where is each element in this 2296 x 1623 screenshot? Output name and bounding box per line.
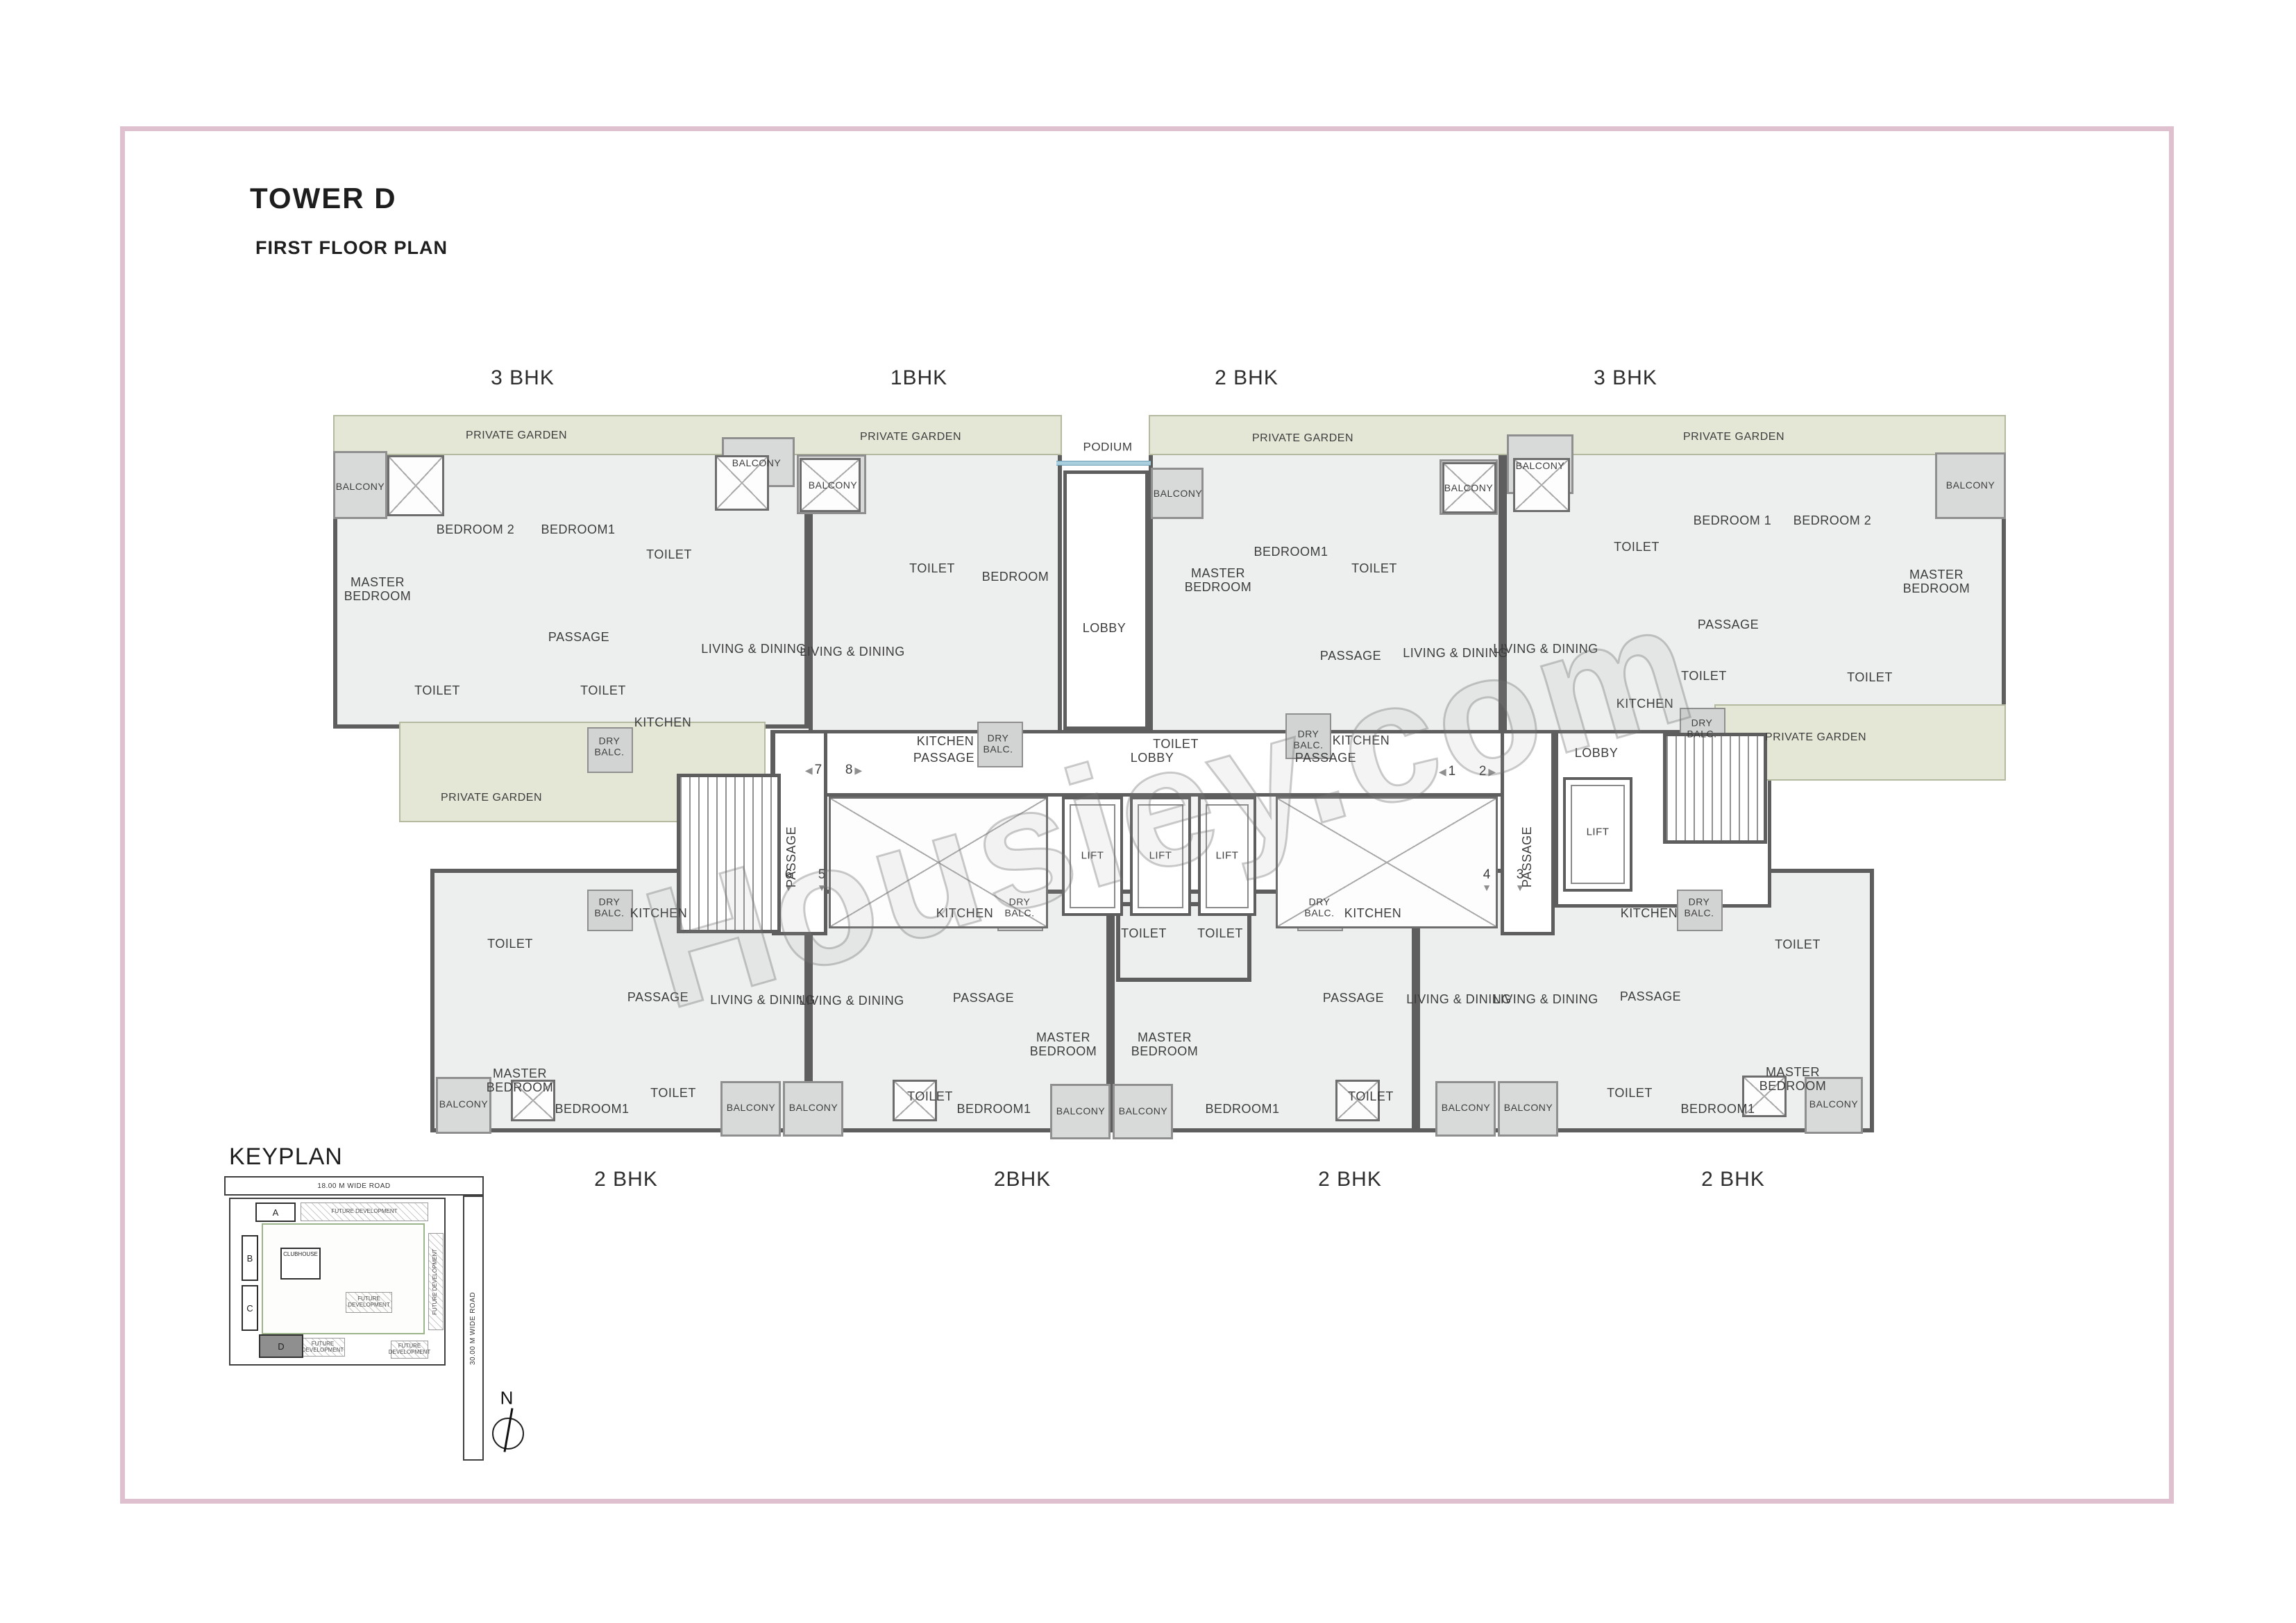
staircase — [677, 774, 781, 933]
room-label: PRIVATE GARDEN — [860, 431, 961, 443]
room-label: KITCHEN — [1333, 733, 1390, 747]
unit-type-label: 1BHK — [890, 366, 947, 390]
room-label: LIFT — [1149, 851, 1172, 863]
unit-type-label: 3 BHK — [491, 366, 555, 390]
staircase — [1663, 733, 1767, 844]
room-label: DRY BALC. — [1005, 897, 1035, 918]
arrow-triangle-icon: ▼ — [817, 883, 827, 892]
room-label: LIVING & DINING — [1403, 646, 1508, 660]
podium-glazing — [1056, 461, 1151, 466]
page-subtitle: FIRST FLOOR PLAN — [255, 237, 448, 259]
room-label: BEDROOM1 — [541, 522, 615, 536]
room-label: TOILET — [1681, 669, 1727, 683]
room-label: PRIVATE GARDEN — [1683, 431, 1784, 443]
keyplan-road: 18.00 M WIDE ROAD — [224, 1176, 484, 1196]
room-label: KITCHEN — [634, 715, 692, 729]
room-label: TOILET — [1847, 670, 1893, 684]
room-label: BALCONY — [809, 480, 857, 491]
keyplan-building-c: C — [242, 1285, 258, 1331]
entry-arrow-1: ◀1 — [1439, 764, 1455, 779]
room-label: MASTER BEDROOM — [1030, 1030, 1097, 1058]
room-label: TOILET — [1197, 926, 1243, 940]
entry-arrow-8: 8▶ — [845, 763, 862, 778]
room-label: BEDROOM 2 — [437, 522, 515, 536]
room-label: TOILET — [1121, 926, 1167, 940]
room-label: DRY BALC. — [595, 736, 625, 757]
room-label: PASSAGE — [548, 630, 609, 644]
room-label: MASTER BEDROOM — [1185, 566, 1252, 594]
north-label: N — [500, 1388, 514, 1409]
room-label: KITCHEN — [917, 734, 974, 748]
room-label: BEDROOM — [982, 570, 1049, 584]
room-label: PRIVATE GARDEN — [1765, 731, 1866, 744]
room-label: LIVING & DINING — [1493, 642, 1598, 656]
room-label: MASTER BEDROOM — [487, 1067, 554, 1094]
keyplan-building-d: D — [259, 1334, 303, 1358]
room-label: LIVING & DINING — [1493, 992, 1598, 1006]
room-label: BEDROOM1 — [555, 1102, 629, 1116]
room-label: PASSAGE — [1520, 826, 1534, 887]
room-label: BALCONY — [1809, 1099, 1858, 1110]
room-label: TOILET — [646, 547, 692, 561]
room-label: BALCONY — [1442, 1103, 1490, 1114]
room-label: MASTER BEDROOM — [1131, 1030, 1199, 1058]
room-label: LIVING & DINING — [799, 994, 904, 1008]
unit-type-label: 2 BHK — [1215, 366, 1278, 390]
room-label: PASSAGE — [627, 990, 689, 1004]
unit-type-label: 2BHK — [994, 1168, 1051, 1191]
arrow-triangle-icon: ◀ — [1439, 767, 1446, 776]
room-label: BALCONY — [727, 1103, 775, 1114]
room-label: BALCONY — [1444, 483, 1493, 494]
room-label: BEDROOM1 — [956, 1102, 1031, 1116]
room-label: PASSAGE — [1620, 989, 1681, 1003]
room-label: TOILET — [1614, 540, 1660, 554]
entry-arrow-2: 2▶ — [1479, 764, 1496, 779]
entry-arrow-5: 5▼ — [817, 867, 827, 892]
room-label: BALCONY — [1056, 1106, 1105, 1117]
keyplan-building-clubhouse: CLUBHOUSE — [280, 1248, 321, 1280]
room-label: DRY BALC. — [984, 733, 1013, 754]
room-label: LOBBY — [1083, 621, 1126, 635]
room-label: TOILET — [909, 561, 955, 575]
room-label: PRIVATE GARDEN — [466, 430, 567, 442]
room-label: PASSAGE — [1295, 751, 1356, 765]
unit-type-label: 2 BHK — [1318, 1168, 1382, 1191]
room-label: MASTER BEDROOM — [344, 575, 412, 603]
keyplan-building-b: B — [242, 1235, 258, 1281]
unit-type-label: 2 BHK — [594, 1168, 658, 1191]
room-label: TOILET — [1348, 1089, 1394, 1103]
room-label: KITCHEN — [630, 906, 688, 920]
room-label: BEDROOM 2 — [1793, 513, 1872, 527]
room-label: TOILET — [414, 683, 460, 697]
room-label: TOILET — [1775, 937, 1821, 951]
room-label: BEDROOM 1 — [1694, 513, 1772, 527]
room-label: KITCHEN — [936, 906, 994, 920]
keyplan-future-development: FUTURE DEVELOPMENT — [428, 1233, 444, 1330]
room-label: BALCONY — [336, 482, 385, 493]
room-label: TOILET — [1607, 1086, 1653, 1100]
keyplan-future-development: FUTURE DEVELOPMENT — [301, 1203, 428, 1221]
room-label: TOILET — [1153, 737, 1199, 751]
room-label: PRIVATE GARDEN — [441, 792, 542, 804]
room-label: LIVING & DINING — [800, 645, 905, 658]
room-label: BEDROOM1 — [1680, 1102, 1755, 1116]
entry-arrow-4: 4▼ — [1482, 867, 1492, 892]
room-label: BALCONY — [1516, 461, 1564, 472]
room-label: DRY BALC. — [1305, 897, 1335, 918]
room-label: BALCONY — [1119, 1106, 1167, 1117]
keyplan-building-a: A — [255, 1203, 296, 1222]
room-label: DRY BALC. — [1687, 717, 1717, 739]
arrow-triangle-icon: ◀ — [805, 765, 813, 775]
room-label: PASSAGE — [913, 751, 974, 765]
room-label: PASSAGE — [784, 826, 798, 887]
room-label: TOILET — [907, 1089, 953, 1103]
room-label: BALCONY — [439, 1099, 488, 1110]
room-label: PASSAGE — [1698, 618, 1759, 631]
room-label: PASSAGE — [1320, 649, 1381, 663]
room-label: KITCHEN — [1617, 697, 1674, 711]
unit-type-label: 2 BHK — [1701, 1168, 1765, 1191]
room-label: LIFT — [1216, 851, 1239, 863]
room-label: BALCONY — [1504, 1103, 1553, 1114]
room-label: PASSAGE — [1323, 991, 1384, 1005]
room-label: BALCONY — [789, 1103, 838, 1114]
room-label: PASSAGE — [953, 991, 1014, 1005]
floor-plan-page: TOWER D FIRST FLOOR PLAN ◀78▶◀12▶6▼5▼4▼3… — [0, 0, 2296, 1623]
keyplan-future-development: FUTURE DEVELOPMENT — [346, 1292, 392, 1313]
entry-arrow-7: ◀7 — [805, 763, 822, 778]
keyplan-road: 30.00 M WIDE ROAD — [463, 1196, 484, 1461]
room-label: PODIUM — [1083, 440, 1133, 453]
room-label: BALCONY — [1154, 488, 1202, 500]
room-label: BALCONY — [732, 458, 781, 469]
room-label: MASTER BEDROOM — [1903, 568, 1970, 595]
room-label: KITCHEN — [1621, 906, 1678, 920]
unit-type-label: 3 BHK — [1594, 366, 1657, 390]
room-label: DRY BALC. — [1294, 729, 1324, 750]
keyplan-title: KEYPLAN — [229, 1144, 343, 1171]
page-title: TOWER D — [250, 182, 397, 215]
arrow-triangle-icon: ▶ — [854, 765, 862, 775]
room-label: LIFT — [1081, 851, 1104, 863]
room-label: BALCONY — [1946, 480, 1995, 491]
duct-shaft — [387, 455, 444, 516]
arrow-triangle-icon: ▼ — [1482, 883, 1492, 892]
room-label: LIFT — [1587, 827, 1610, 839]
room-label: KITCHEN — [1344, 906, 1402, 920]
room-label: PRIVATE GARDEN — [1252, 432, 1353, 445]
room-label: TOILET — [580, 683, 626, 697]
arrow-triangle-icon: ▶ — [1488, 767, 1496, 776]
keyplan-future-development: FUTURE DEVELOPMENT — [391, 1341, 428, 1359]
room-label: DRY BALC. — [1685, 897, 1714, 918]
room-label: MASTER BEDROOM — [1759, 1065, 1827, 1093]
keyplan-future-development: FUTURE DEVELOPMENT — [301, 1338, 345, 1357]
room-label: TOILET — [1351, 561, 1397, 575]
core-entrance-lobby — [1063, 470, 1149, 730]
room-label: BEDROOM1 — [1205, 1102, 1279, 1116]
room-label: LOBBY — [1575, 746, 1619, 760]
room-label: TOILET — [487, 937, 533, 951]
room-label: LOBBY — [1131, 751, 1174, 765]
room-label: BEDROOM1 — [1253, 545, 1328, 559]
room-label: TOILET — [650, 1086, 696, 1100]
room-label: LIVING & DINING — [701, 642, 807, 656]
room-label: DRY BALC. — [595, 897, 625, 918]
